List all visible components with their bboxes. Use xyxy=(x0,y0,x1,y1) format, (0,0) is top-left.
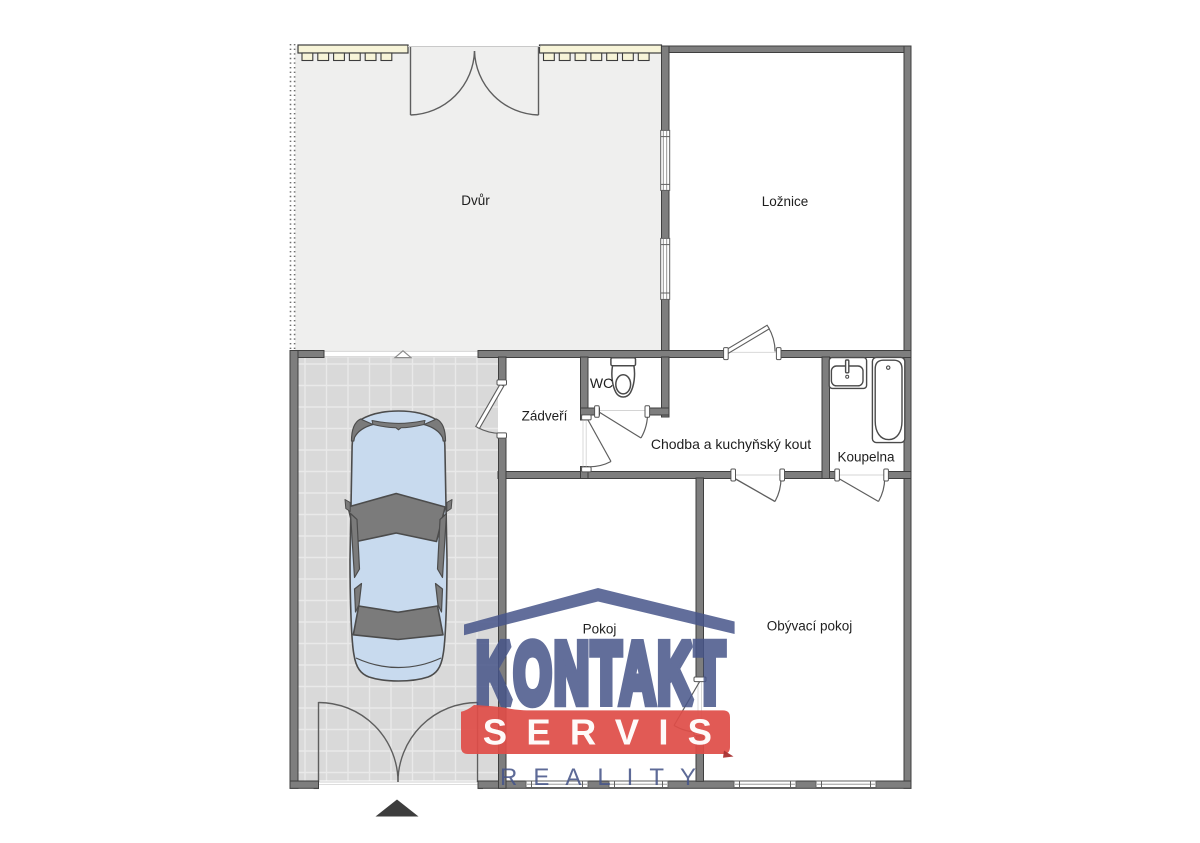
svg-text:Koupelna: Koupelna xyxy=(837,450,895,465)
svg-text:Ložnice: Ložnice xyxy=(762,194,809,209)
svg-text:Zádveří: Zádveří xyxy=(522,409,568,424)
svg-text:Chodba a kuchyňský kout: Chodba a kuchyňský kout xyxy=(651,436,811,452)
svg-text:Obývací pokoj: Obývací pokoj xyxy=(767,619,853,634)
svg-text:KONTAKT: KONTAKT xyxy=(476,625,727,721)
svg-text:Dvůr: Dvůr xyxy=(461,193,490,208)
svg-text:WC: WC xyxy=(590,375,613,391)
svg-text:SERVIS: SERVIS xyxy=(483,712,731,753)
svg-text:REALITY: REALITY xyxy=(500,764,712,791)
